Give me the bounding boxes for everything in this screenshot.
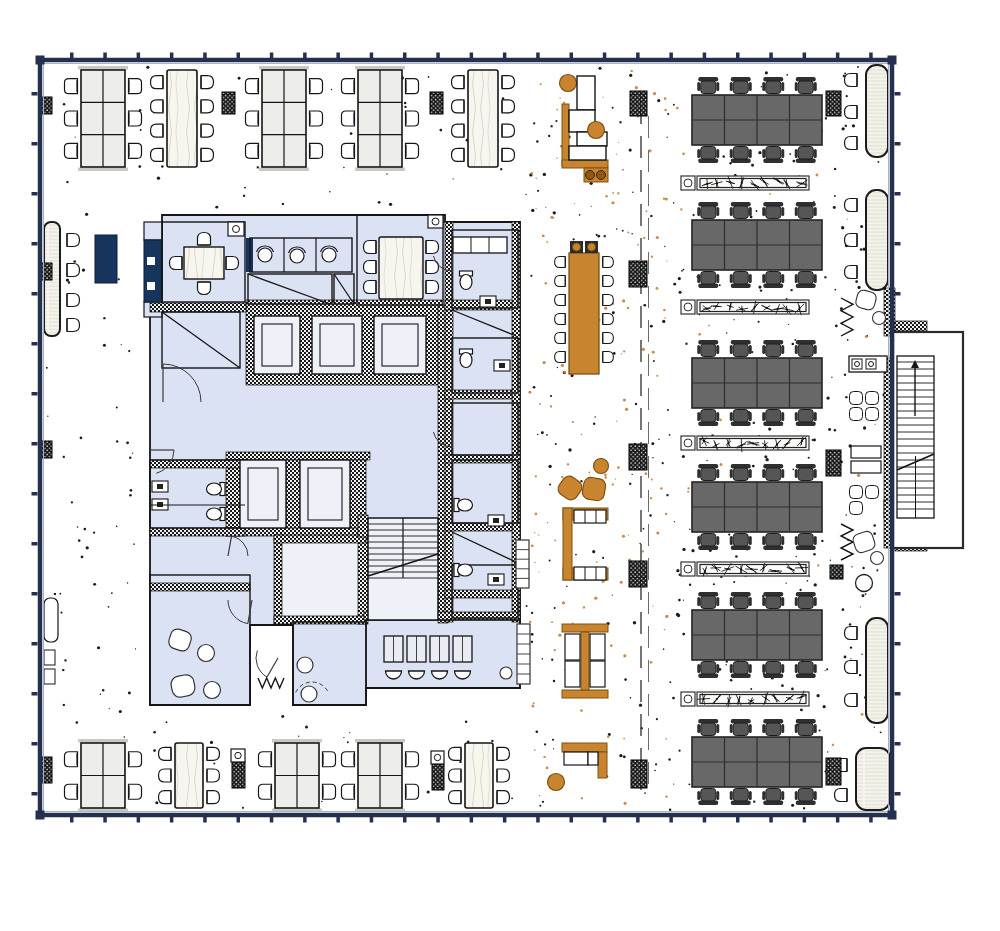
chair-icon (342, 111, 355, 126)
chair-body (310, 143, 323, 158)
chair-icon (170, 257, 183, 270)
chair-arm (697, 597, 700, 606)
chair-seat (701, 344, 716, 357)
chair-arm (730, 664, 733, 673)
chair-arm (795, 664, 798, 673)
floor-speck (566, 585, 568, 587)
wall-mullion-tick (32, 792, 38, 796)
task-chair-icon (697, 719, 719, 736)
chair-icon (67, 234, 80, 247)
rrect-shape (850, 408, 863, 421)
chair-arm (697, 664, 700, 673)
floor-speck (758, 321, 760, 323)
chair-arm (730, 274, 733, 283)
floor-speck (865, 335, 868, 338)
chair-seat (766, 789, 781, 802)
chair-icon (207, 791, 220, 804)
task-chair-icon (762, 77, 784, 94)
floor-speck (664, 97, 667, 100)
shelving-part (562, 624, 608, 632)
floor-speck (635, 86, 638, 89)
chair-arm (749, 274, 752, 283)
pocket-hatched-wall (895, 321, 927, 331)
floor-speck (116, 526, 118, 528)
floor-speck (667, 409, 669, 411)
chair-icon (502, 76, 515, 89)
phone-booth-chair (290, 249, 304, 263)
chair-icon (198, 233, 211, 246)
chair-icon (201, 100, 214, 113)
cluster-rail (259, 66, 309, 70)
floor-speck (562, 601, 565, 604)
task-chair-icon (795, 147, 817, 164)
floor-speck (546, 434, 548, 436)
task-chair-icon (795, 77, 817, 94)
floor-speck (792, 469, 794, 471)
chair-icon (65, 79, 78, 94)
floor-speck (404, 106, 406, 108)
floor-speck (877, 161, 879, 163)
wall-mullion-tick (603, 53, 607, 59)
desk-cluster (65, 66, 142, 171)
floor-speck (708, 325, 710, 327)
chair-body (259, 752, 272, 767)
wood-meeting-table (449, 743, 510, 808)
chair-arm (749, 149, 752, 158)
pocket-furniture (871, 552, 884, 565)
chair-arm (762, 469, 765, 478)
floor-speck (86, 546, 89, 549)
chair-icon (65, 143, 78, 158)
wall-mullion-tick (503, 53, 507, 59)
chair-body (201, 124, 214, 137)
task-chair-icon (762, 272, 784, 289)
floor-speck (691, 549, 694, 552)
floor-speck (130, 489, 133, 492)
floor-speck (753, 422, 755, 424)
floor-speck (862, 567, 864, 569)
floor-speck (855, 280, 858, 283)
chair-body (129, 143, 142, 158)
desk-cluster (342, 66, 419, 171)
floor-speck (668, 758, 670, 760)
floor-speck (597, 235, 600, 238)
floor-speck (103, 317, 105, 319)
chair-arm (762, 724, 765, 733)
task-chair-icon (762, 789, 784, 806)
plant-dot (727, 442, 729, 444)
pocket-furniture (850, 392, 863, 405)
planter-row (681, 562, 809, 576)
floor-speck (860, 225, 863, 228)
chair-arm (781, 149, 784, 158)
chair-body (151, 76, 164, 89)
chair-arm (730, 724, 733, 733)
plant-dot (741, 308, 743, 310)
chair-body (845, 137, 858, 150)
window-booth (845, 190, 889, 290)
toilet-bowl (207, 483, 222, 495)
chair-icon (406, 143, 419, 158)
floor-speck (761, 86, 762, 87)
floor-speck (549, 560, 551, 562)
floor-speck (764, 455, 767, 458)
floor-speck (851, 566, 853, 568)
chair-icon (845, 74, 858, 87)
floor-speck (116, 440, 118, 442)
floor-speck (791, 804, 794, 807)
chair-body (246, 79, 259, 94)
floor-speck (830, 560, 831, 561)
floor-speck (93, 532, 95, 534)
task-chair-icon (795, 719, 817, 736)
cluster-rail (355, 168, 405, 172)
chair-seat (766, 723, 781, 736)
floor-speck (321, 801, 323, 803)
task-chair-icon (762, 592, 784, 609)
floor-speck (59, 593, 61, 595)
floor-speck (281, 715, 284, 718)
floor-speck (119, 710, 122, 713)
chair-arm (814, 791, 817, 800)
wall-mullion-tick (137, 53, 141, 59)
floor-speck (574, 203, 575, 204)
chair-seat (766, 468, 781, 481)
floor-speck (73, 260, 76, 263)
chair-icon (835, 789, 848, 802)
floor-speck (850, 658, 851, 659)
chair-body (342, 79, 355, 94)
floor-speck (833, 206, 836, 209)
floor-speck (558, 634, 561, 637)
floor-speck (329, 191, 331, 193)
floor-speck (531, 704, 534, 707)
plant-dot (798, 307, 800, 309)
booth-bench (866, 65, 888, 157)
cluster-rail (78, 739, 128, 743)
floor-speck (632, 191, 633, 192)
floor-speck (728, 533, 730, 535)
floor-speck (146, 66, 149, 69)
plant-dot (741, 182, 743, 184)
floor-speck (834, 429, 837, 432)
floor-speck (629, 74, 632, 77)
floor-speck (795, 556, 796, 557)
chair-icon (497, 769, 510, 782)
plant-dot (716, 182, 718, 184)
wall-mullion-tick (270, 817, 274, 823)
floor-speck (619, 121, 621, 123)
wall-mullion-tick (895, 292, 901, 296)
floor-speck (350, 132, 353, 135)
floor-speck (841, 226, 844, 229)
chair-arm (795, 597, 798, 606)
wall-mullion-tick (32, 292, 38, 296)
floor-speck (500, 168, 502, 170)
floor-speck (726, 660, 728, 662)
chair-seat (701, 468, 716, 481)
chair-arm (795, 412, 798, 421)
chair-body (67, 234, 80, 247)
booth-bench (866, 618, 888, 723)
floor-speck (60, 612, 62, 614)
chair-body (502, 100, 515, 113)
chair-arm (781, 412, 784, 421)
chair-body (342, 752, 355, 767)
task-chair-icon (730, 410, 752, 427)
floor-speck (596, 561, 598, 563)
chair-arm (716, 597, 719, 606)
floor-speck (331, 89, 332, 90)
planter-pot (681, 176, 695, 190)
chair-icon (449, 747, 462, 760)
floor-speck (534, 532, 535, 533)
wall-mullion-tick (536, 53, 540, 59)
chair-arm (795, 791, 798, 800)
chair-icon (555, 313, 566, 324)
chair-body (159, 747, 172, 760)
floor-speck (64, 659, 66, 661)
wall-mullion-tick (536, 817, 540, 823)
floor-speck (857, 474, 860, 477)
floor-speck (813, 201, 814, 202)
rrect-shape (866, 408, 879, 421)
floor-speck (631, 474, 632, 475)
floor-speck (644, 792, 646, 794)
kitchenette-part (577, 76, 595, 110)
core-hatched-wall (274, 535, 366, 543)
chair-icon (555, 275, 566, 286)
floor-speck (604, 235, 606, 237)
wall-mullion-tick (32, 192, 38, 196)
floor-speck (343, 167, 345, 169)
floor-speck (428, 76, 430, 78)
chair-icon (603, 256, 614, 267)
chair-body (603, 256, 614, 267)
floor-speck (667, 113, 669, 115)
floor-speck (594, 416, 595, 417)
wall-mullion-tick (137, 817, 141, 823)
floor-speck (644, 472, 647, 475)
floor-speck (672, 697, 675, 700)
navy-lockers (144, 240, 162, 302)
floor-speck (635, 403, 637, 405)
chair-body (65, 752, 78, 767)
floor-speck (617, 466, 620, 469)
chair-arm (795, 724, 798, 733)
floor-speck (62, 669, 64, 671)
floor-speck (525, 194, 526, 195)
wall-mullion-tick (769, 53, 773, 59)
chair-icon (452, 76, 465, 89)
floor-speck (537, 190, 539, 192)
task-chair-icon (697, 662, 719, 679)
chair-body (207, 747, 220, 760)
floor-speck (669, 809, 672, 812)
floor-speck (404, 102, 406, 104)
pocket-furniture (851, 446, 881, 458)
cluster-rail (259, 168, 309, 172)
floor-speck (81, 556, 84, 559)
floor-speck (128, 350, 130, 352)
floor-speck (166, 721, 168, 723)
chair-icon (129, 79, 142, 94)
wall-mullion-tick (270, 53, 274, 59)
rrect-shape (866, 392, 879, 405)
floor-speck (554, 540, 556, 542)
floor-speck (551, 621, 553, 623)
chair-body (497, 747, 510, 760)
floor-speck (80, 437, 83, 440)
structural-column (830, 565, 843, 579)
table-top (175, 743, 203, 808)
chair-icon (259, 784, 272, 799)
floor-speck (850, 646, 852, 648)
chair-arm (781, 597, 784, 606)
task-chair-icon (697, 202, 719, 219)
floor-speck (129, 494, 132, 497)
floor-speck (109, 708, 110, 709)
chair-body (452, 148, 465, 161)
chair-icon (310, 79, 323, 94)
floor-speck (646, 210, 648, 212)
task-chair-icon (762, 410, 784, 427)
chair-icon (406, 784, 419, 799)
plant-dot (774, 697, 776, 699)
structural-column (826, 758, 841, 785)
chair-icon (452, 100, 465, 113)
floor-speck (554, 649, 556, 651)
lounge-part (563, 508, 572, 580)
chair-icon (603, 332, 614, 343)
chair-seat (766, 147, 781, 160)
stool-top (573, 243, 581, 251)
task-chair-icon (697, 789, 719, 806)
floor-speck (819, 729, 821, 731)
plant-dot (750, 568, 752, 570)
plant-dot (752, 442, 754, 444)
task-chair-icon (697, 410, 719, 427)
wall-mullion-tick (869, 53, 873, 59)
cluster-rail (272, 739, 322, 743)
floor-speck (653, 360, 655, 362)
wall-mullion-tick (570, 817, 574, 823)
kitchenette-part (562, 160, 608, 168)
floor-speck (103, 344, 106, 347)
wall-mullion-tick (32, 442, 38, 446)
chair-arm (781, 724, 784, 733)
kitchenette-part (586, 171, 595, 180)
chair-seat (701, 596, 716, 609)
wall-mullion-tick (736, 817, 740, 823)
floor-speck (650, 497, 652, 499)
toilet-bowl (458, 564, 473, 576)
chair-arm (762, 274, 765, 283)
task-chair-icon (795, 592, 817, 609)
floor-speck (616, 420, 617, 421)
wall-mullion-tick (503, 817, 507, 823)
chair-seat (733, 81, 748, 94)
chair-icon (845, 661, 858, 674)
floor-speck (298, 735, 299, 736)
floor-speck (612, 311, 615, 314)
chair-arm (814, 345, 817, 354)
core-hatched-wall (274, 616, 366, 624)
floor-speck (622, 230, 624, 232)
task-chair-icon (697, 340, 719, 357)
floor-speck (548, 465, 551, 468)
kitchenette-part (562, 104, 569, 166)
floor-speck (539, 403, 541, 405)
core-hatched-wall (445, 455, 512, 463)
external-stair-zone (893, 332, 963, 548)
chair-icon (603, 275, 614, 286)
chair-body (555, 294, 566, 305)
pocket-furniture (851, 461, 881, 473)
chair-body (342, 784, 355, 799)
floor-speck (844, 73, 846, 75)
floor-speck (656, 531, 659, 534)
plant-dot (763, 181, 765, 183)
floor-speck (713, 583, 715, 585)
pocket-furniture (866, 392, 879, 405)
floor-speck (244, 187, 246, 189)
floor-speck (666, 261, 667, 262)
chair-icon (342, 79, 355, 94)
wall-mullion-tick (103, 53, 107, 59)
plant-dot (801, 567, 803, 569)
chair-icon (449, 791, 462, 804)
floor-speck (622, 299, 625, 302)
floor-speck (654, 770, 656, 772)
floor-speck (656, 236, 659, 239)
chair-arm (762, 345, 765, 354)
chair-arm (814, 207, 817, 216)
lounge-blob-chair (204, 682, 221, 699)
floor-speck (860, 248, 862, 250)
plant-dot (788, 697, 790, 699)
chair-icon (452, 148, 465, 161)
task-chair-icon (730, 272, 752, 289)
floor-speck (615, 478, 616, 479)
structural-column (826, 91, 841, 116)
floor-speck (605, 195, 607, 197)
floor-speck (389, 203, 392, 206)
wall-mullion-tick (32, 142, 38, 146)
floor-speck (343, 737, 344, 738)
floor-speck (531, 209, 534, 212)
chair-body (67, 264, 80, 277)
chair-seat (798, 789, 813, 802)
round-side-table (856, 575, 873, 592)
floor-speck (535, 513, 538, 516)
chair-seat (701, 410, 716, 423)
chair-icon (406, 752, 419, 767)
task-chair-icon (762, 202, 784, 219)
central-shaft-floor (282, 543, 358, 616)
chair-icon (198, 282, 211, 295)
floor-speck (46, 367, 48, 369)
plant-dot (801, 182, 803, 184)
floor-speck (133, 543, 135, 545)
chair-body (159, 769, 172, 782)
chair-body (129, 111, 142, 126)
task-chair-icon (795, 534, 817, 551)
floor-speck (553, 748, 554, 749)
floor-speck (549, 483, 551, 485)
plant-dot (765, 697, 767, 699)
chair-icon (67, 319, 80, 332)
